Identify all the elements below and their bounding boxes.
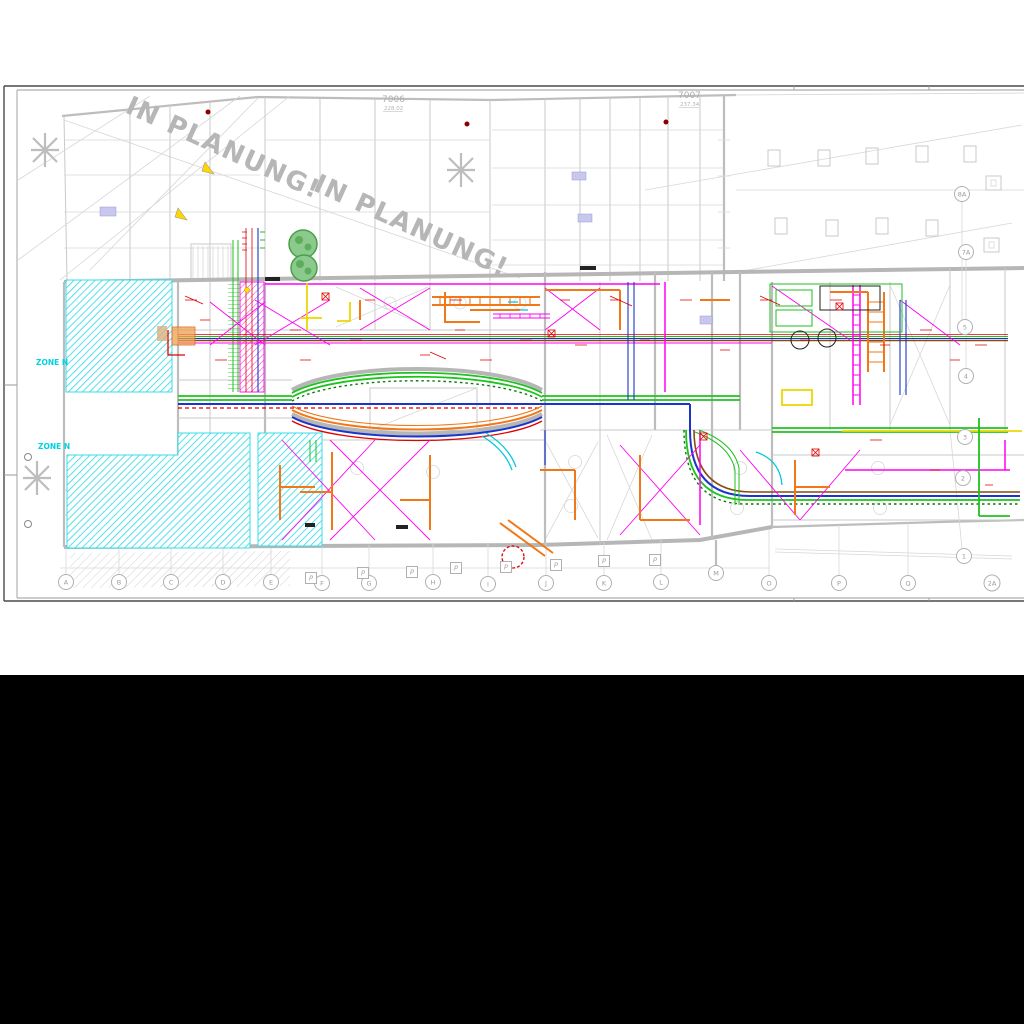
parking-marker: P bbox=[407, 567, 418, 578]
zone-hatch-areas bbox=[66, 280, 322, 548]
svg-text:E: E bbox=[269, 579, 273, 587]
ref-number-7006: 7006 bbox=[382, 95, 405, 105]
atrium-ring bbox=[292, 373, 542, 441]
grid-bubble: I bbox=[481, 577, 496, 592]
punch-hole bbox=[25, 454, 32, 461]
grid-bubble: 8A bbox=[955, 187, 970, 202]
svg-text:I: I bbox=[487, 581, 489, 589]
parking-marker: P bbox=[358, 568, 369, 579]
marker-dot bbox=[206, 110, 211, 115]
svg-text:O: O bbox=[766, 580, 771, 588]
zone-n-hatch-3 bbox=[258, 433, 322, 546]
parking-marker: P bbox=[551, 560, 562, 571]
grid-bubble: 5 bbox=[958, 320, 973, 335]
svg-text:B: B bbox=[117, 579, 121, 587]
svg-text:D: D bbox=[220, 579, 225, 587]
punch-hole bbox=[25, 521, 32, 528]
parking-marker: P bbox=[306, 573, 317, 584]
svg-text:2A: 2A bbox=[988, 580, 997, 588]
svg-text:Q: Q bbox=[905, 580, 910, 588]
svg-text:1: 1 bbox=[962, 553, 966, 561]
yellow-lines bbox=[300, 283, 1022, 431]
watermark-text-2: IN PLANUNG! bbox=[309, 169, 513, 284]
parking-marker: P bbox=[650, 555, 661, 566]
svg-text:4: 4 bbox=[964, 373, 968, 381]
column-grid-bubbles-right: 8A 7A 5 4 3 2 1 bbox=[955, 187, 974, 564]
grid-bubble: D bbox=[216, 575, 231, 590]
ref-number-7007: 7007 bbox=[678, 91, 701, 101]
svg-text:H: H bbox=[431, 579, 436, 587]
grid-bubble: 4 bbox=[959, 369, 974, 384]
grid-bubble: C bbox=[164, 575, 179, 590]
svg-text:G: G bbox=[366, 580, 371, 588]
letterbox-bottom bbox=[0, 675, 1024, 1024]
marker-dot bbox=[664, 120, 669, 125]
grid-bubble: O bbox=[762, 576, 777, 591]
parking-marker: P bbox=[501, 562, 512, 573]
parking-marker: P bbox=[599, 556, 610, 567]
grid-bubble: J bbox=[539, 576, 554, 591]
grid-bubble: 2 bbox=[956, 471, 971, 486]
grid-bubble: A bbox=[59, 575, 74, 590]
zone-n-hatch-1 bbox=[66, 280, 172, 392]
grid-bubble: 3 bbox=[958, 430, 973, 445]
svg-text:5: 5 bbox=[963, 324, 967, 332]
svg-text:F: F bbox=[320, 580, 324, 588]
svg-text:3: 3 bbox=[963, 434, 967, 442]
svg-text:A: A bbox=[64, 579, 69, 587]
svg-text:C: C bbox=[169, 579, 174, 587]
svg-text:J: J bbox=[544, 580, 547, 588]
marker-dot bbox=[465, 122, 470, 127]
cyan-lines bbox=[482, 302, 782, 485]
tree-symbols bbox=[289, 230, 317, 281]
zone-n-hatch-2 bbox=[67, 433, 250, 548]
svg-text:2: 2 bbox=[961, 475, 965, 483]
svg-text:P: P bbox=[837, 580, 841, 588]
svg-text:M: M bbox=[713, 570, 719, 578]
grid-bubble: 2A bbox=[984, 575, 1000, 591]
grid-bubble: 1 bbox=[957, 549, 972, 564]
zone-n-label-1: ZONE N bbox=[36, 358, 68, 367]
grid-bubble: H bbox=[426, 575, 441, 590]
grid-bubble: M bbox=[709, 566, 724, 581]
svg-text:7A: 7A bbox=[962, 249, 971, 257]
ref-elev-7007: 237.34 bbox=[680, 102, 700, 108]
svg-text:K: K bbox=[602, 580, 607, 588]
grid-bubble: Q bbox=[901, 576, 916, 591]
grid-bubble: P bbox=[832, 576, 847, 591]
floor-plan-sheet: IN PLANUNG! IN PLANUNG! bbox=[0, 0, 1024, 675]
grid-bubble: 7A bbox=[959, 245, 974, 260]
grid-bubble: B bbox=[112, 575, 127, 590]
grid-bubble: E bbox=[264, 575, 279, 590]
grid-bubble: K bbox=[597, 576, 612, 591]
image-viewer-canvas: IN PLANUNG! IN PLANUNG! bbox=[0, 0, 1024, 1024]
zone-n-label-2: ZONE N bbox=[38, 442, 70, 451]
blue-risers bbox=[545, 282, 906, 465]
svg-text:L: L bbox=[659, 579, 663, 587]
parking-marker: P bbox=[451, 563, 462, 574]
svg-text:8A: 8A bbox=[958, 191, 967, 199]
ref-elev-7006: 228.02 bbox=[384, 106, 403, 112]
grid-bubble: L bbox=[654, 575, 669, 590]
